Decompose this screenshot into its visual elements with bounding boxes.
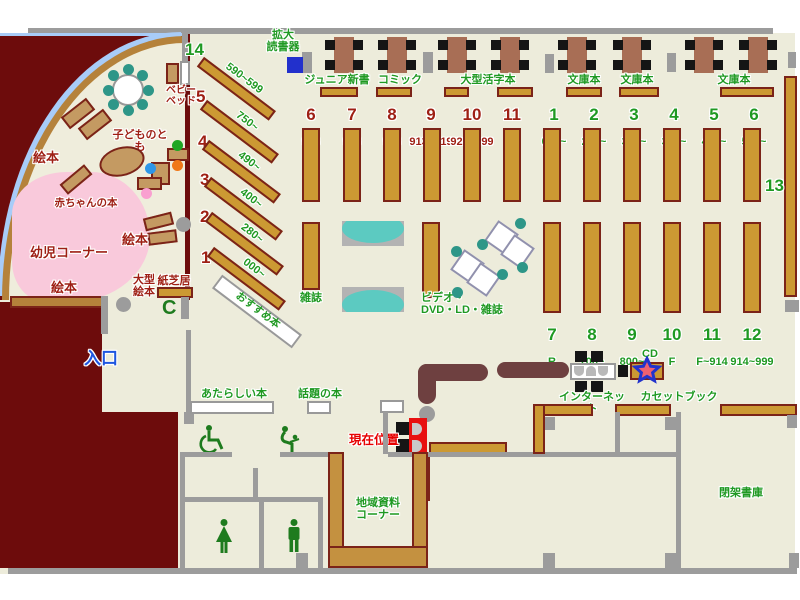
shelf-number: 13: [765, 177, 784, 195]
outside-area: [0, 302, 102, 568]
monitor: [598, 366, 608, 376]
bookshelf: [743, 222, 761, 313]
chair: [123, 64, 134, 75]
shelf: [166, 63, 179, 84]
chair: [137, 99, 148, 110]
glass-wall: [0, 33, 185, 36]
wheelchair-icon: [198, 423, 228, 455]
chair: [452, 287, 463, 298]
pillar: [423, 52, 433, 73]
pillar: [303, 54, 312, 73]
bookshelf: [463, 128, 481, 202]
pillar: [788, 52, 796, 68]
local-materials-shelf: [328, 546, 428, 568]
cd-star-icon: [632, 356, 662, 386]
bookshelf: [663, 222, 681, 313]
reading-table: [685, 37, 723, 73]
service-counter: [497, 362, 569, 378]
bookshelf: [784, 76, 797, 297]
service-counter: [418, 364, 436, 404]
bookshelf: [383, 128, 401, 202]
wall-bookshelf: [10, 296, 104, 308]
magazine-shelf: [302, 222, 320, 290]
reading-table: [739, 37, 777, 73]
wall: [615, 412, 620, 457]
label-baby-books: 赤ちゃんの本: [53, 198, 119, 210]
pillar: [785, 300, 799, 312]
pillar: [787, 415, 797, 428]
label-closed-stacks: 閉架書庫: [706, 487, 776, 499]
label-junior-shinsho: ジュニア新書: [302, 74, 372, 86]
label-kids-corner: 幼児コーナー: [24, 246, 114, 261]
pillar: [665, 553, 677, 568]
reading-table: [613, 37, 651, 73]
magnifier-device: [287, 57, 303, 73]
bookshelf: [533, 404, 545, 454]
label-picture-books: 絵本: [44, 281, 84, 296]
label-av-corner: ビデオ・ DVD・LD・雑誌: [421, 292, 513, 317]
label-magazines: 雑誌: [293, 292, 329, 304]
wall: [676, 412, 681, 568]
chair: [591, 351, 603, 362]
chair: [123, 105, 134, 116]
chair: [108, 99, 119, 110]
label-current-location: 現在位置: [349, 429, 399, 448]
label-kamishibai: 紙芝居: [155, 275, 193, 287]
bookshelf: [583, 128, 601, 202]
label-magnifier: 拡大 読書器: [259, 29, 307, 54]
wall: [253, 468, 258, 500]
label-new-books: あたらしい本: [198, 388, 270, 400]
wall: [259, 502, 264, 568]
topic-books-shelf: [307, 401, 331, 414]
label-picture-books: 絵本: [26, 151, 66, 166]
chair: [618, 365, 628, 377]
bookshelf: [623, 128, 641, 202]
label-bunko: 文庫本: [564, 74, 604, 86]
stool-green: [172, 140, 183, 151]
bookshelf: [543, 128, 561, 202]
label-entrance: 入口: [84, 344, 118, 369]
label-cassette-books: カセットブック: [638, 391, 720, 403]
pillar: [789, 553, 799, 568]
wall: [181, 297, 189, 319]
reading-table: [558, 37, 596, 73]
wall: [8, 568, 797, 574]
pillar: [667, 53, 676, 72]
bookshelf: [583, 222, 601, 313]
wall: [280, 452, 330, 457]
label-bunko: 文庫本: [714, 74, 754, 86]
chair: [477, 239, 488, 250]
male-toilet-icon: [283, 518, 305, 554]
reading-table: [378, 37, 416, 73]
baby-bed: [180, 61, 190, 85]
outside-area: [102, 412, 178, 568]
label-picture-books: 絵本: [115, 233, 155, 248]
label-local-materials: 地域資料 コーナー: [340, 497, 416, 522]
bookshelf: [343, 128, 361, 202]
bookshelf: [302, 128, 320, 202]
bookshelf: [703, 128, 721, 202]
bookshelf: [615, 404, 671, 416]
bookshelf: [720, 404, 797, 416]
phone-icon: C: [162, 297, 176, 320]
wall: [101, 296, 108, 334]
reading-table: [491, 37, 529, 73]
bookshelf: [423, 128, 441, 202]
new-books-shelf: [190, 401, 274, 414]
shelf-number: 14: [185, 41, 204, 59]
wall: [383, 412, 388, 454]
monitor: [586, 366, 596, 376]
label-topic-books: 話題の本: [295, 388, 345, 400]
wall: [318, 497, 323, 568]
baby-changing-icon: [277, 424, 303, 454]
stool-blue: [145, 163, 156, 174]
bookshelf: [663, 128, 681, 202]
wall: [180, 497, 323, 502]
chair: [497, 269, 508, 280]
bookshelf: [743, 128, 761, 202]
chair: [517, 262, 528, 273]
pillar: [296, 553, 308, 568]
chair: [103, 85, 114, 96]
female-toilet-icon: [213, 518, 235, 554]
bookshelf: [503, 128, 521, 202]
wall: [180, 452, 232, 457]
chair: [108, 70, 119, 81]
bookshelf: [543, 222, 561, 313]
pillar: [543, 553, 555, 568]
chair: [515, 218, 526, 229]
bookshelf: [623, 222, 641, 313]
chair: [143, 85, 154, 96]
chair: [137, 70, 148, 81]
curved-bench: [342, 221, 404, 246]
stool-pink: [141, 188, 152, 199]
label-large-print: 大型活字本: [456, 74, 520, 86]
bookshelf: [703, 222, 721, 313]
curved-bench: [342, 287, 404, 312]
label-comics: コミック: [376, 74, 424, 86]
shelf-label: 12 914~999: [722, 314, 782, 381]
pillar: [116, 297, 131, 312]
stool-orange: [172, 160, 183, 171]
monitor: [574, 366, 584, 376]
av-shelf: [422, 222, 440, 298]
pillar: [545, 54, 554, 73]
reading-table: [438, 37, 476, 73]
pillar: [545, 417, 555, 430]
label-bunko: 文庫本: [617, 74, 657, 86]
wall: [180, 452, 185, 568]
library-floor-map: 幼児コーナー 子どものとも ベビー ベッド 絵本 赤ちゃんの本 絵本 絵本 大型…: [0, 0, 800, 600]
pillar: [176, 217, 191, 232]
chair: [575, 351, 587, 362]
label-baby-bed: ベビー ベッド: [162, 85, 200, 107]
reading-table: [325, 37, 363, 73]
chair: [451, 246, 462, 257]
